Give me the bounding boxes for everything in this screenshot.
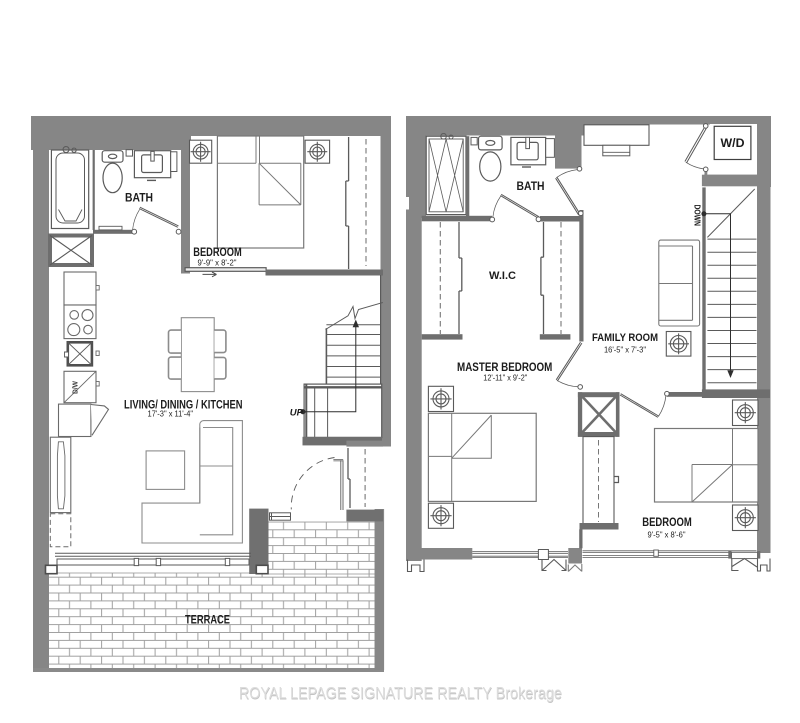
svg-text:9'-9" x 8'-2": 9'-9" x 8'-2": [198, 258, 237, 268]
svg-text:DOWN: DOWN: [693, 204, 702, 226]
svg-text:W.I.C: W.I.C: [489, 270, 516, 282]
svg-text:9'-5" x 8'-6": 9'-5" x 8'-6": [648, 529, 686, 539]
svg-text:BATH: BATH: [125, 192, 153, 204]
svg-text:17'-3" x 11'-4": 17'-3" x 11'-4": [148, 409, 194, 419]
svg-text:UP: UP: [290, 407, 304, 418]
svg-text:W/D: W/D: [721, 138, 745, 150]
svg-text:FAMILY ROOM: FAMILY ROOM: [592, 332, 658, 344]
svg-text:12'-11" x 9'-2": 12'-11" x 9'-2": [483, 373, 527, 383]
svg-text:D/W: D/W: [73, 381, 80, 394]
svg-text:16'-5" x 7'-3": 16'-5" x 7'-3": [604, 344, 646, 354]
svg-text:BATH: BATH: [517, 181, 545, 193]
svg-text:ROYAL LEPAGE SIGNATURE REALTY: ROYAL LEPAGE SIGNATURE REALTY Brokerage: [239, 684, 562, 703]
svg-text:BEDROOM: BEDROOM: [642, 517, 692, 529]
svg-text:TERRACE: TERRACE: [185, 615, 230, 627]
